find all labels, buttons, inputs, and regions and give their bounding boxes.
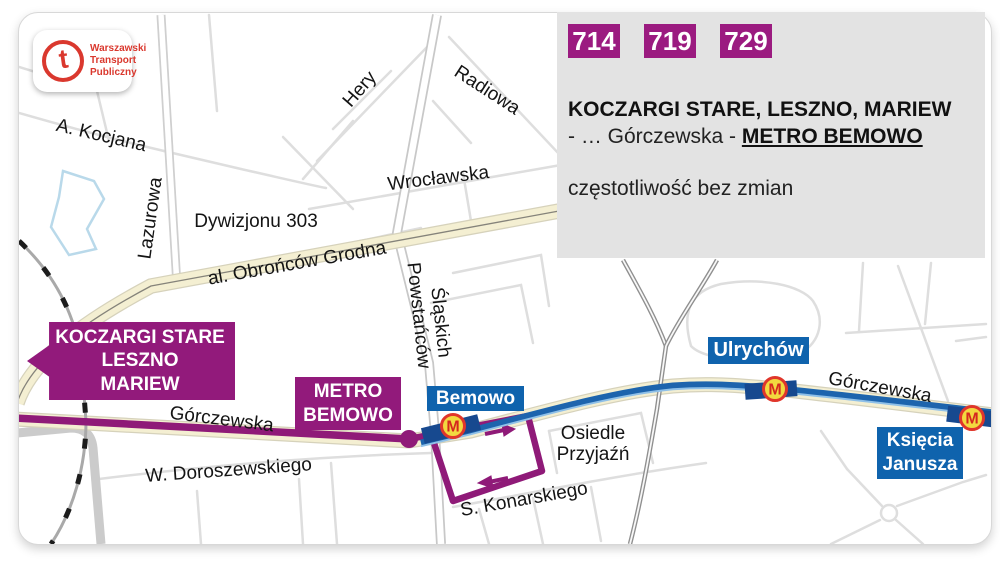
metro-m-letter: M (768, 382, 781, 399)
area-label-osiedle-2: Przyjaźń (557, 444, 630, 465)
station-box-ksiecia-janusza: Księcia Janusza (877, 427, 963, 479)
wtp-logo-letter: t (57, 45, 70, 73)
street-label-dywizjonu: Dywizjonu 303 (194, 211, 318, 232)
route-via: - … Górczewska - (568, 125, 742, 148)
station-name: Janusza (877, 453, 963, 477)
street-label-lazurowa: Lazurowa (134, 176, 166, 261)
route-terminus-dot (400, 430, 418, 448)
street-label-konarskiego: S. Konarskiego (459, 478, 590, 521)
route-badge-729: 729 (720, 24, 772, 58)
metro-m-letter: M (446, 419, 459, 436)
route-description: - … Górczewska - METRO BEMOWO (568, 123, 973, 150)
route-terminus-text: METRO BEMOWO (742, 125, 923, 148)
wtp-logo-line: Transport (90, 55, 146, 67)
street-label-wroclawska: Wrocławska (386, 162, 490, 195)
street-label-hery: Hery (339, 67, 381, 111)
route-badges: 714 719 729 (568, 24, 973, 58)
terminus-line: LESZNO (45, 349, 235, 372)
metro-bemowo-line: METRO (295, 380, 401, 403)
street-label-obroncow: al. Obrońców Grodna (206, 237, 388, 289)
pond-outline (51, 171, 104, 255)
wtp-logo: t Warszawski Transport Publiczny (33, 30, 132, 92)
area-label-osiedle-1: Osiedle (561, 423, 625, 444)
metro-bemowo-line: BEMOWO (295, 404, 401, 427)
street-label-kocjana: A. Kocjana (54, 115, 149, 156)
route-badge-719: 719 (644, 24, 696, 58)
frequency-note: częstotliwość bez zmian (568, 177, 973, 201)
terminus-line: MARIEW (45, 373, 235, 396)
arrow-left-head (478, 476, 493, 488)
station-name: Księcia (877, 429, 963, 453)
station-box-ulrychow: Ulrychów (708, 337, 809, 364)
wtp-logo-line: Publiczny (90, 67, 146, 79)
wtp-logo-line: Warszawski (90, 43, 146, 55)
street-label-radiowa: Radiowa (450, 61, 524, 119)
wtp-logo-icon: t (42, 40, 84, 82)
terminus-line: KOCZARGI STARE (45, 326, 235, 349)
station-box-bemowo: Bemowo (427, 386, 524, 411)
wtp-logo-text: Warszawski Transport Publiczny (90, 43, 146, 79)
street-label-doroszewskiego: W. Doroszewskiego (145, 454, 313, 487)
metro-logo-bemowo: M (442, 415, 465, 438)
route-headline: KOCZARGI STARE, LESZNO, MARIEW (568, 96, 973, 123)
route-badge-714: 714 (568, 24, 620, 58)
station-name: Ulrychów (708, 338, 809, 363)
terminus-arrow-label: KOCZARGI STARE LESZNO MARIEW (27, 322, 235, 400)
metro-bemowo-label: METRO BEMOWO (295, 377, 401, 430)
metro-logo-ulrychow: M (764, 378, 787, 401)
station-name: Bemowo (427, 387, 524, 411)
metro-m-letter: M (965, 411, 978, 428)
info-panel: 714 719 729 KOCZARGI STARE, LESZNO, MARI… (557, 12, 985, 258)
metro-logo-ksiecia-janusza: M (961, 407, 984, 430)
